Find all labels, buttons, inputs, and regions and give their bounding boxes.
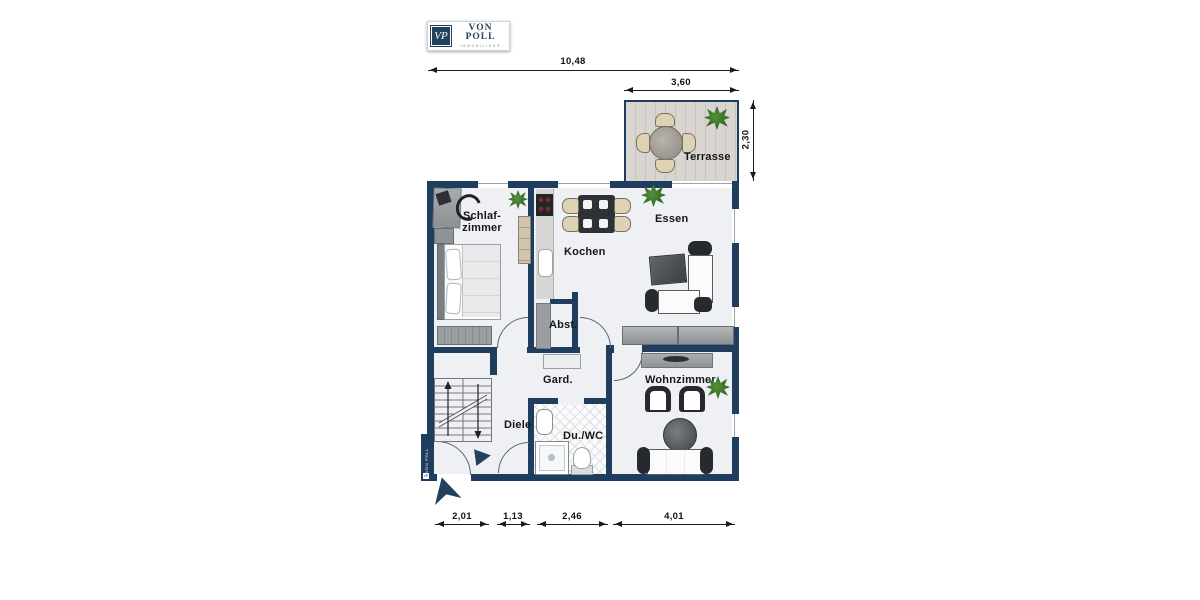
floorplan-canvas: VP VON POLL IMMOBILIEN® 10,48 3,60 2,30 … [0, 0, 1200, 600]
sofa-l-corner [694, 297, 712, 312]
dining-chair-2 [562, 216, 579, 232]
dim-bottom-1: 2,01 [440, 511, 484, 522]
dim-terrace-width: 3,60 [651, 77, 711, 88]
watermark-text: VON POLL [424, 434, 429, 473]
terrasse-label: Terrasse [684, 151, 731, 163]
wall-abst-top [550, 299, 578, 304]
window-schlafzimmer [478, 181, 508, 188]
armchair-2 [679, 386, 705, 412]
wardrobe [518, 216, 531, 264]
dim-bottom-3: 2,46 [550, 511, 594, 522]
cabinet-gard [543, 354, 581, 369]
terrace-door [672, 181, 734, 188]
wall-essen-wohn-2 [642, 345, 732, 352]
wall-right-2 [732, 243, 739, 307]
terrace-chair-west [636, 133, 650, 153]
plate-1 [583, 200, 592, 209]
diele-label: Diele [504, 419, 531, 431]
stove [536, 194, 553, 216]
logo-name: VON POLL [452, 24, 509, 43]
window-wohnzimmer [732, 414, 739, 437]
terrace-chair-south [655, 159, 675, 173]
kochen-label: Kochen [564, 246, 606, 258]
dim-line-total [428, 70, 739, 71]
wall-gard-wohn [606, 345, 612, 474]
essen-label: Essen [655, 213, 688, 225]
dresser [434, 228, 454, 244]
dining-chair-4 [614, 216, 631, 232]
staircase [434, 378, 492, 442]
gard-label: Gard. [543, 374, 573, 386]
dim-bottom-4: 4,01 [652, 511, 696, 522]
watermark-vp-icon: VP [423, 473, 429, 479]
logo-subtitle: IMMOBILIEN® [452, 45, 509, 49]
window-essen [732, 209, 739, 243]
wall-top-2 [508, 181, 558, 188]
vp-logo-icon: VP [430, 25, 452, 47]
vonpoll-logo: VP VON POLL IMMOBILIEN® [427, 21, 510, 51]
dim-line-bottom-1 [435, 524, 489, 525]
radiator-schlafzimmer [437, 326, 492, 345]
washbasin [536, 409, 553, 435]
wohnzimmer-label: Wohnzimmer [645, 374, 716, 386]
coffee-table-essen [649, 253, 687, 285]
wall-bottom-2 [471, 474, 739, 481]
plate-2 [599, 200, 608, 209]
shower-drain [548, 454, 555, 461]
wall-schlaf-kochen [528, 188, 534, 353]
window-essen-2 [732, 307, 739, 327]
duwc-label: Du./WC [563, 430, 603, 442]
schlafzimmer-label: Schlaf- zimmer [458, 211, 506, 234]
dining-chair-1 [562, 198, 579, 214]
watermark: VON POLL VP [421, 434, 431, 481]
dim-line-bottom-4 [613, 524, 735, 525]
dim-line-bottom-2 [497, 524, 530, 525]
window-kochen [558, 181, 610, 188]
wall-schlaf-diele-2 [527, 347, 534, 353]
kitchen-sink [538, 249, 553, 277]
wall-schlaf-diele-1 [434, 347, 497, 353]
wall-diele-stub [490, 353, 497, 375]
dim-line-bottom-3 [537, 524, 608, 525]
sideboard-essen-1 [622, 326, 678, 345]
pillow-1 [445, 249, 462, 281]
tv [663, 356, 689, 362]
sofa-arm-left [637, 447, 650, 474]
plate-4 [599, 219, 608, 228]
armchair-1 [645, 386, 671, 412]
sideboard-essen-2 [678, 326, 734, 345]
bed-blanket [462, 245, 500, 317]
dim-total-width: 10,48 [543, 56, 603, 67]
sofa-wohnzimmer [647, 449, 705, 475]
dim-line-terrace [624, 90, 739, 91]
sofa-l-arm-left [645, 289, 659, 312]
terrace-table [649, 126, 683, 160]
terrace-chair-east [682, 133, 696, 153]
dim-line-terrace-depth [753, 100, 754, 181]
sofa-arm-right [700, 447, 713, 474]
sofa-l-arm-top [688, 241, 712, 256]
abst-label: Abst. [549, 319, 578, 331]
wall-right-1 [732, 181, 739, 209]
terrace-chair-north [655, 113, 675, 127]
dining-chair-3 [614, 198, 631, 214]
dim-terrace-depth: 2,30 [741, 125, 752, 155]
round-table [663, 418, 697, 452]
toilet [573, 447, 591, 469]
plate-3 [583, 219, 592, 228]
pillow-2 [445, 283, 462, 315]
